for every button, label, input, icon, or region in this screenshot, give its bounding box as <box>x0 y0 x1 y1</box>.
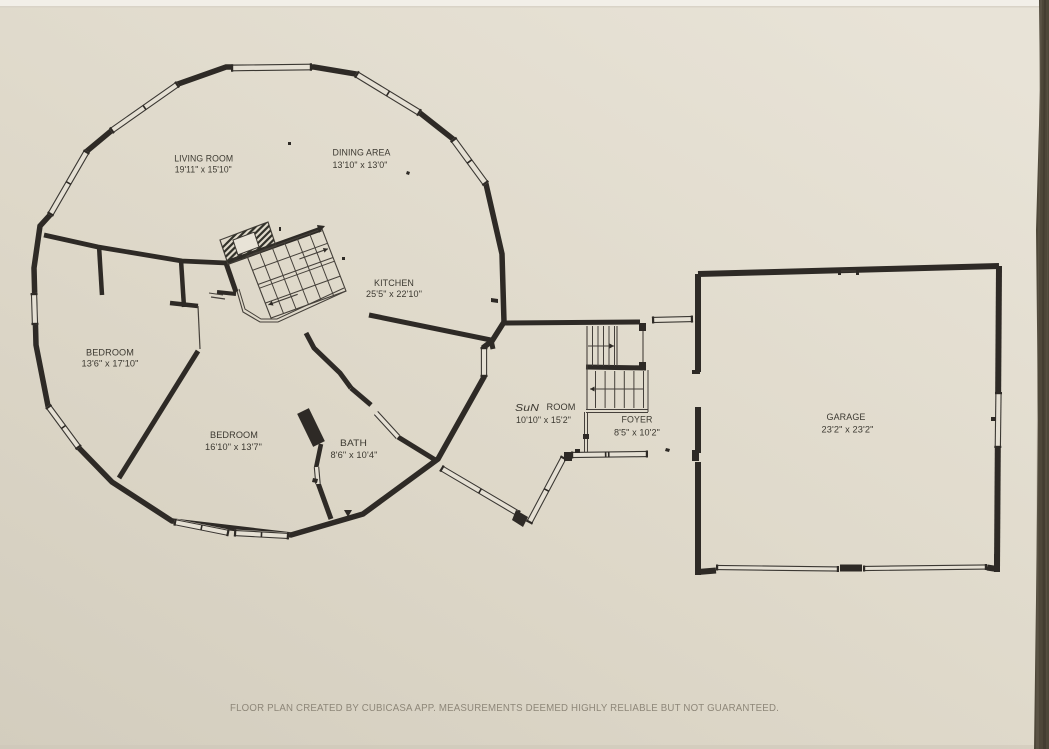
svg-text:GARAGE: GARAGE <box>827 412 866 422</box>
svg-text:BEDROOM: BEDROOM <box>86 348 134 358</box>
svg-text:DINING AREA: DINING AREA <box>333 148 392 158</box>
svg-text:FLOOR PLAN CREATED BY CUBICASA: FLOOR PLAN CREATED BY CUBICASA APP. MEAS… <box>230 703 779 714</box>
svg-text:13'10" x 13'0": 13'10" x 13'0" <box>333 160 388 170</box>
svg-text:19'11" x 15'10": 19'11" x 15'10" <box>175 165 232 175</box>
svg-text:BATH: BATH <box>340 438 367 448</box>
svg-text:SuN: SuN <box>515 403 540 414</box>
svg-text:LIVING ROOM: LIVING ROOM <box>174 154 233 164</box>
svg-text:8'6" x 10'4": 8'6" x 10'4" <box>331 450 378 460</box>
svg-text:10'10" x 15'2": 10'10" x 15'2" <box>516 415 571 425</box>
svg-text:FOYER: FOYER <box>622 415 653 425</box>
svg-text:8'5" x 10'2": 8'5" x 10'2" <box>614 428 660 438</box>
svg-text:ROOM: ROOM <box>547 402 576 412</box>
svg-text:KITCHEN: KITCHEN <box>374 278 414 288</box>
svg-text:13'6" x 17'10": 13'6" x 17'10" <box>82 359 139 369</box>
svg-text:16'10" x 13'7": 16'10" x 13'7" <box>205 442 262 452</box>
svg-text:23'2" x 23'2": 23'2" x 23'2" <box>822 425 874 435</box>
svg-text:25'5" x 22'10": 25'5" x 22'10" <box>366 289 422 299</box>
svg-text:BEDROOM: BEDROOM <box>210 430 258 440</box>
